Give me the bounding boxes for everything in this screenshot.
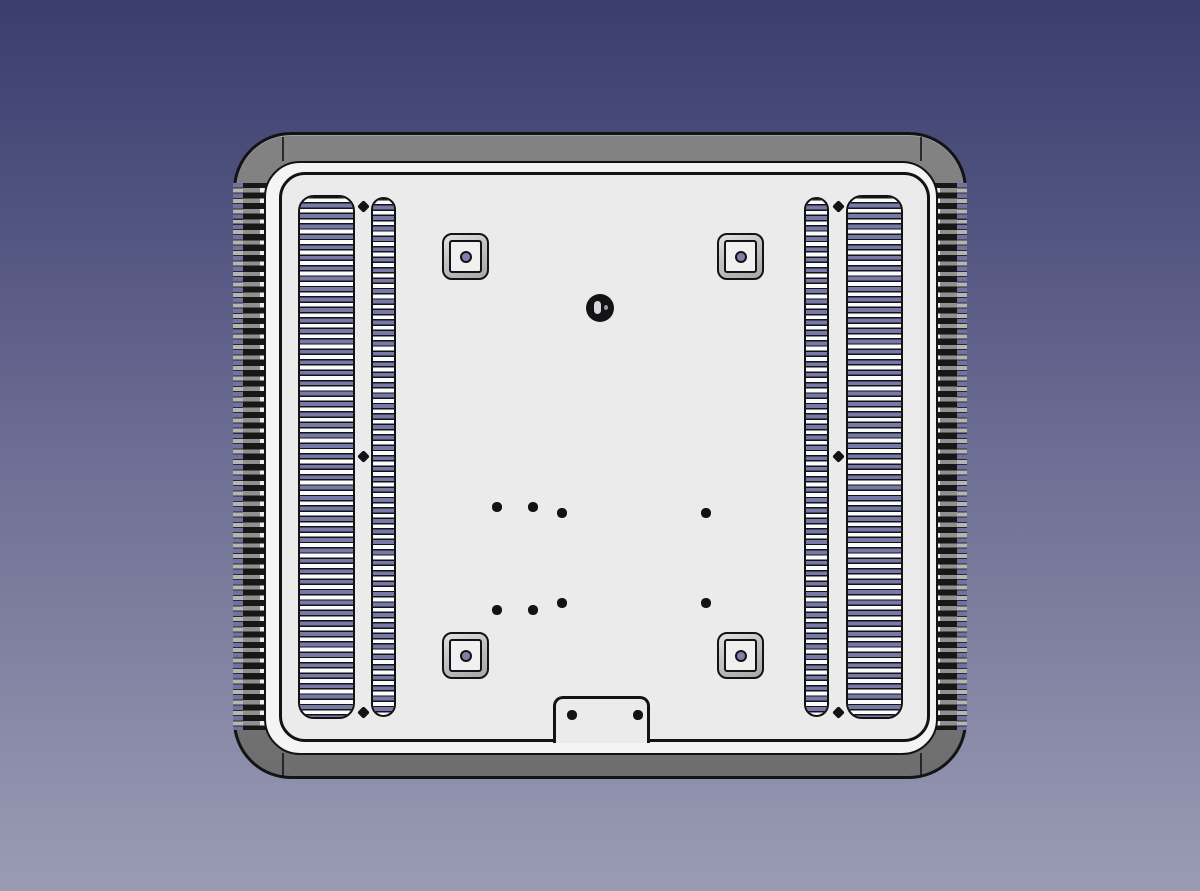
mount-hole[interactable]: [528, 605, 538, 615]
vent-column-right-narrow[interactable]: [804, 197, 829, 717]
boss-hole[interactable]: [460, 251, 472, 263]
cable-clamp-notch[interactable]: [553, 696, 650, 743]
fin-comb-outer: [957, 183, 967, 730]
mount-hole[interactable]: [492, 605, 502, 615]
frame-seam-bottom-right: [920, 753, 922, 777]
notch-hole-right[interactable]: [633, 710, 643, 720]
boss-top-right[interactable]: [717, 233, 764, 280]
mount-hole[interactable]: [492, 502, 502, 512]
mount-hole[interactable]: [557, 508, 567, 518]
fin-comb-outer: [233, 183, 243, 730]
vent-column-left-narrow[interactable]: [371, 197, 396, 717]
boss-hole[interactable]: [460, 650, 472, 662]
boss-hole[interactable]: [735, 251, 747, 263]
boss-bottom-left[interactable]: [442, 632, 489, 679]
mount-hole[interactable]: [528, 502, 538, 512]
frame-seam-bottom-left: [282, 753, 284, 777]
frame-seam-top-right: [920, 137, 922, 161]
center-pivot-screw[interactable]: [586, 294, 614, 322]
fin-body: [940, 183, 957, 730]
notch-hole-left[interactable]: [567, 710, 577, 720]
boss-top-left[interactable]: [442, 233, 489, 280]
mount-hole[interactable]: [557, 598, 567, 608]
vent-column-left-wide[interactable]: [298, 195, 355, 719]
boss-hole[interactable]: [735, 650, 747, 662]
vent-column-right-wide[interactable]: [846, 195, 903, 719]
fin-body: [243, 183, 260, 730]
screw-glint: [604, 305, 608, 310]
mount-hole[interactable]: [701, 598, 711, 608]
boss-bottom-right[interactable]: [717, 632, 764, 679]
cad-3d-viewport[interactable]: [0, 0, 1200, 891]
frame-seam-top-left: [282, 137, 284, 161]
screw-slot-highlight: [594, 301, 601, 314]
mount-hole[interactable]: [701, 508, 711, 518]
